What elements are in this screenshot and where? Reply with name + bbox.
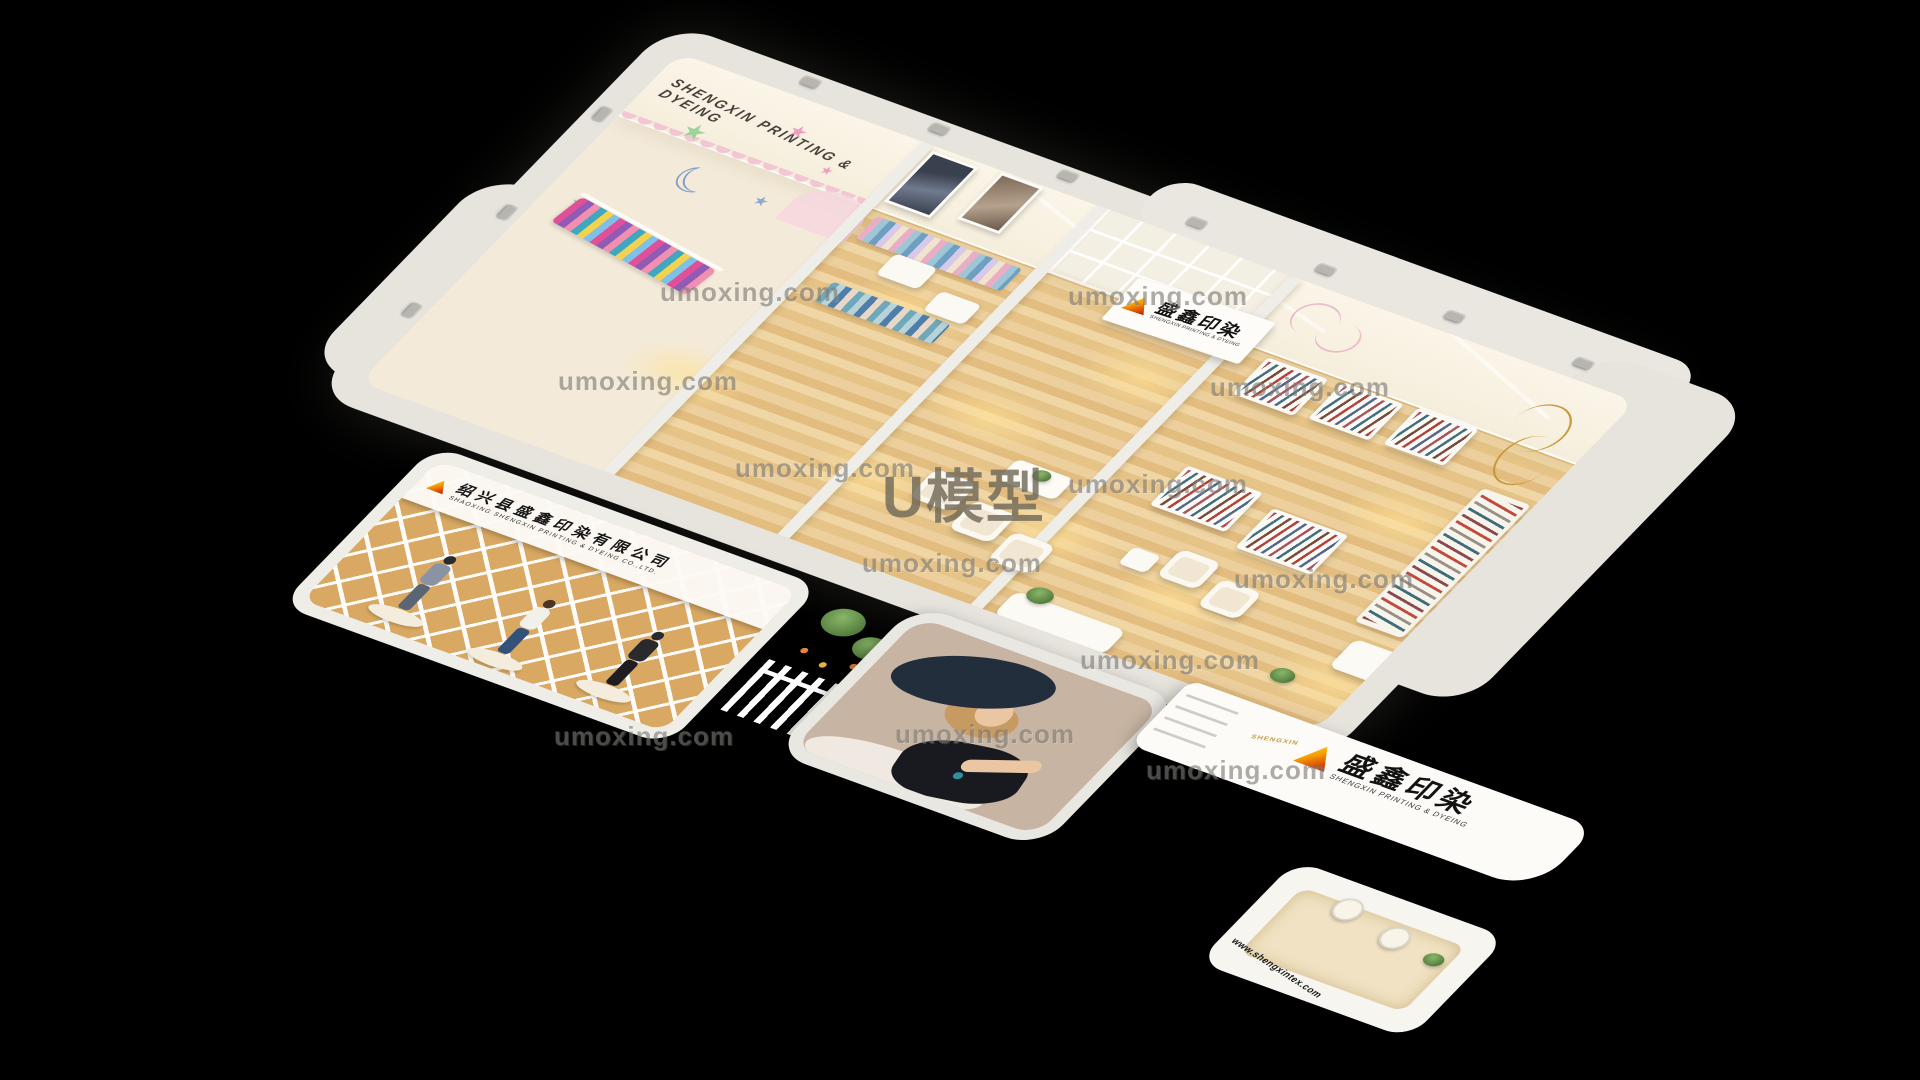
watermark: umoxing.com — [558, 366, 738, 397]
mannequin-figure — [483, 596, 564, 664]
watermark: umoxing.com — [1146, 755, 1326, 786]
exhibition-booth: SHENGXIN PRINTING & DYEING ★ ★ ★ ★ ★ ☾ — [312, 22, 1684, 762]
spotlight-icon — [1057, 170, 1078, 182]
plant-icon — [812, 604, 874, 642]
watermark: umoxing.com — [1234, 564, 1414, 595]
watermark: umoxing.com — [1080, 645, 1260, 676]
render-stage: SHENGXIN PRINTING & DYEING ★ ★ ★ ★ ★ ☾ — [0, 0, 1920, 1080]
poster-arm — [959, 759, 1043, 773]
watermark: umoxing.com — [1068, 281, 1248, 312]
spotlight-icon — [592, 107, 611, 121]
watermark: umoxing.com — [862, 548, 1042, 579]
storefront-sign-chinese: 绍兴县盛鑫印染有限公司 — [451, 483, 676, 573]
watermark: umoxing.com — [1068, 469, 1248, 500]
watermark: umoxing.com — [895, 719, 1075, 750]
watermark: umoxing.com — [554, 721, 734, 752]
flower-icon — [799, 647, 810, 654]
flower-icon — [817, 661, 828, 668]
reception-desk: www.shengxintex.com — [1197, 860, 1507, 1039]
mannequin-figure — [592, 628, 673, 696]
logo-mark-text: SHENGXIN — [1249, 735, 1299, 747]
poster-hat — [879, 648, 1068, 717]
triangle-logo-icon — [426, 478, 453, 495]
spotlight-icon — [800, 76, 821, 88]
watermark: umoxing.com — [660, 277, 840, 308]
watermark: umoxing.com — [1210, 372, 1390, 403]
spotlight-icon — [929, 123, 950, 135]
storefront-sign-english: SHAOXING SHENGXIN PRINTING & DYEING CO.,… — [446, 495, 664, 578]
mannequin-figure — [384, 552, 465, 620]
model-site-watermark: U模型 — [882, 450, 1046, 534]
moon-icon: ☾ — [667, 161, 720, 202]
